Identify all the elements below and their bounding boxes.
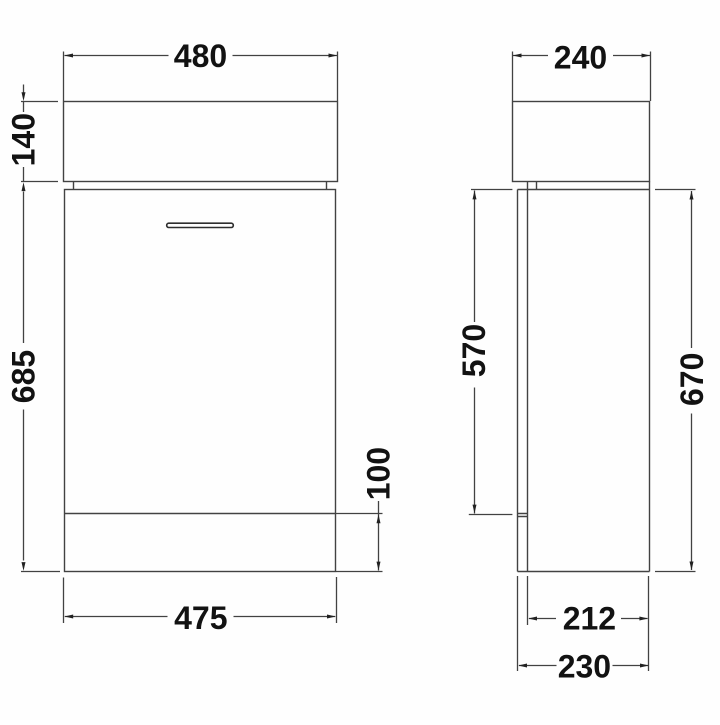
svg-text:570: 570 <box>456 324 492 377</box>
svg-text:140: 140 <box>6 113 42 166</box>
svg-text:230: 230 <box>558 648 611 684</box>
svg-text:480: 480 <box>174 38 227 74</box>
svg-text:100: 100 <box>361 447 397 500</box>
svg-text:685: 685 <box>6 350 42 403</box>
svg-text:670: 670 <box>674 353 710 406</box>
svg-text:475: 475 <box>174 600 227 636</box>
svg-text:212: 212 <box>563 601 616 637</box>
svg-text:240: 240 <box>554 39 607 75</box>
